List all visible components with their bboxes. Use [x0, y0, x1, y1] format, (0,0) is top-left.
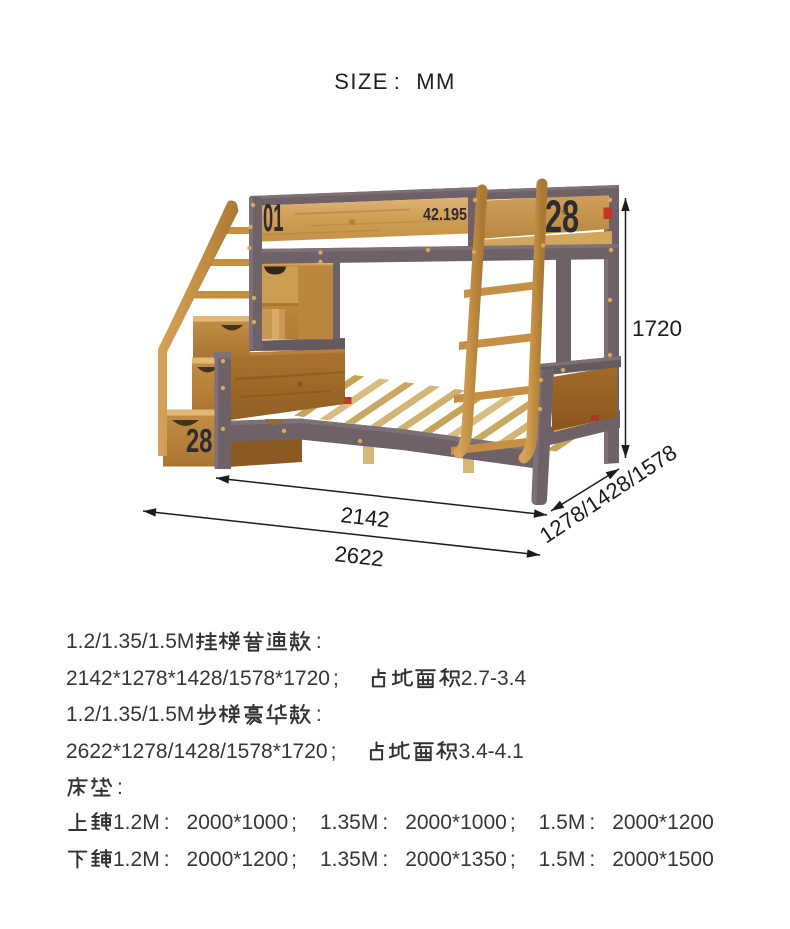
svg-text:2142: 2142 — [339, 502, 390, 532]
svg-text:2622: 2622 — [333, 541, 384, 571]
svg-text:28: 28 — [186, 423, 212, 460]
svg-text:1720: 1720 — [632, 316, 682, 341]
